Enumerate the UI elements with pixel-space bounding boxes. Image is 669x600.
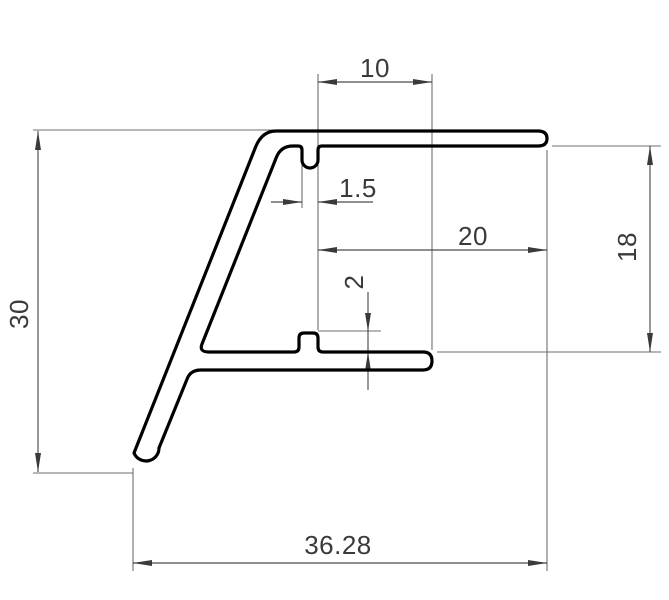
arrow-left-icon [318,79,337,85]
dimension-label-20: 20 [458,221,488,251]
profile-drawing: 30 36.28 10 1.5 [0,0,669,600]
drawing-canvas: 30 36.28 10 1.5 [0,0,669,600]
dimension-label-30: 30 [4,299,34,329]
dimension-label-2: 2 [339,275,369,290]
dim-rib-height: 2 [318,275,381,390]
arrow-right-icon [528,247,547,253]
arrow-up-icon [365,352,371,371]
dimension-label-36-28: 36.28 [304,530,372,560]
arrow-down-icon [647,333,653,352]
arrow-left-icon [133,560,152,566]
arrow-right-icon [528,560,547,566]
arrow-left-icon [318,247,337,253]
arrow-left-icon [318,199,337,205]
arrow-up-icon [647,146,653,165]
dimension-label-1-5: 1.5 [339,173,377,203]
dimension-label-10: 10 [360,53,390,83]
arrow-right-icon [283,199,302,205]
arrow-up-icon [35,131,41,150]
arrow-down-icon [35,453,41,472]
arrow-right-icon [413,79,432,85]
dim-notch-width: 1.5 [271,152,377,208]
dimension-label-18: 18 [612,232,642,262]
dim-overall-width: 36.28 [133,150,547,571]
arrow-down-icon [365,313,371,331]
